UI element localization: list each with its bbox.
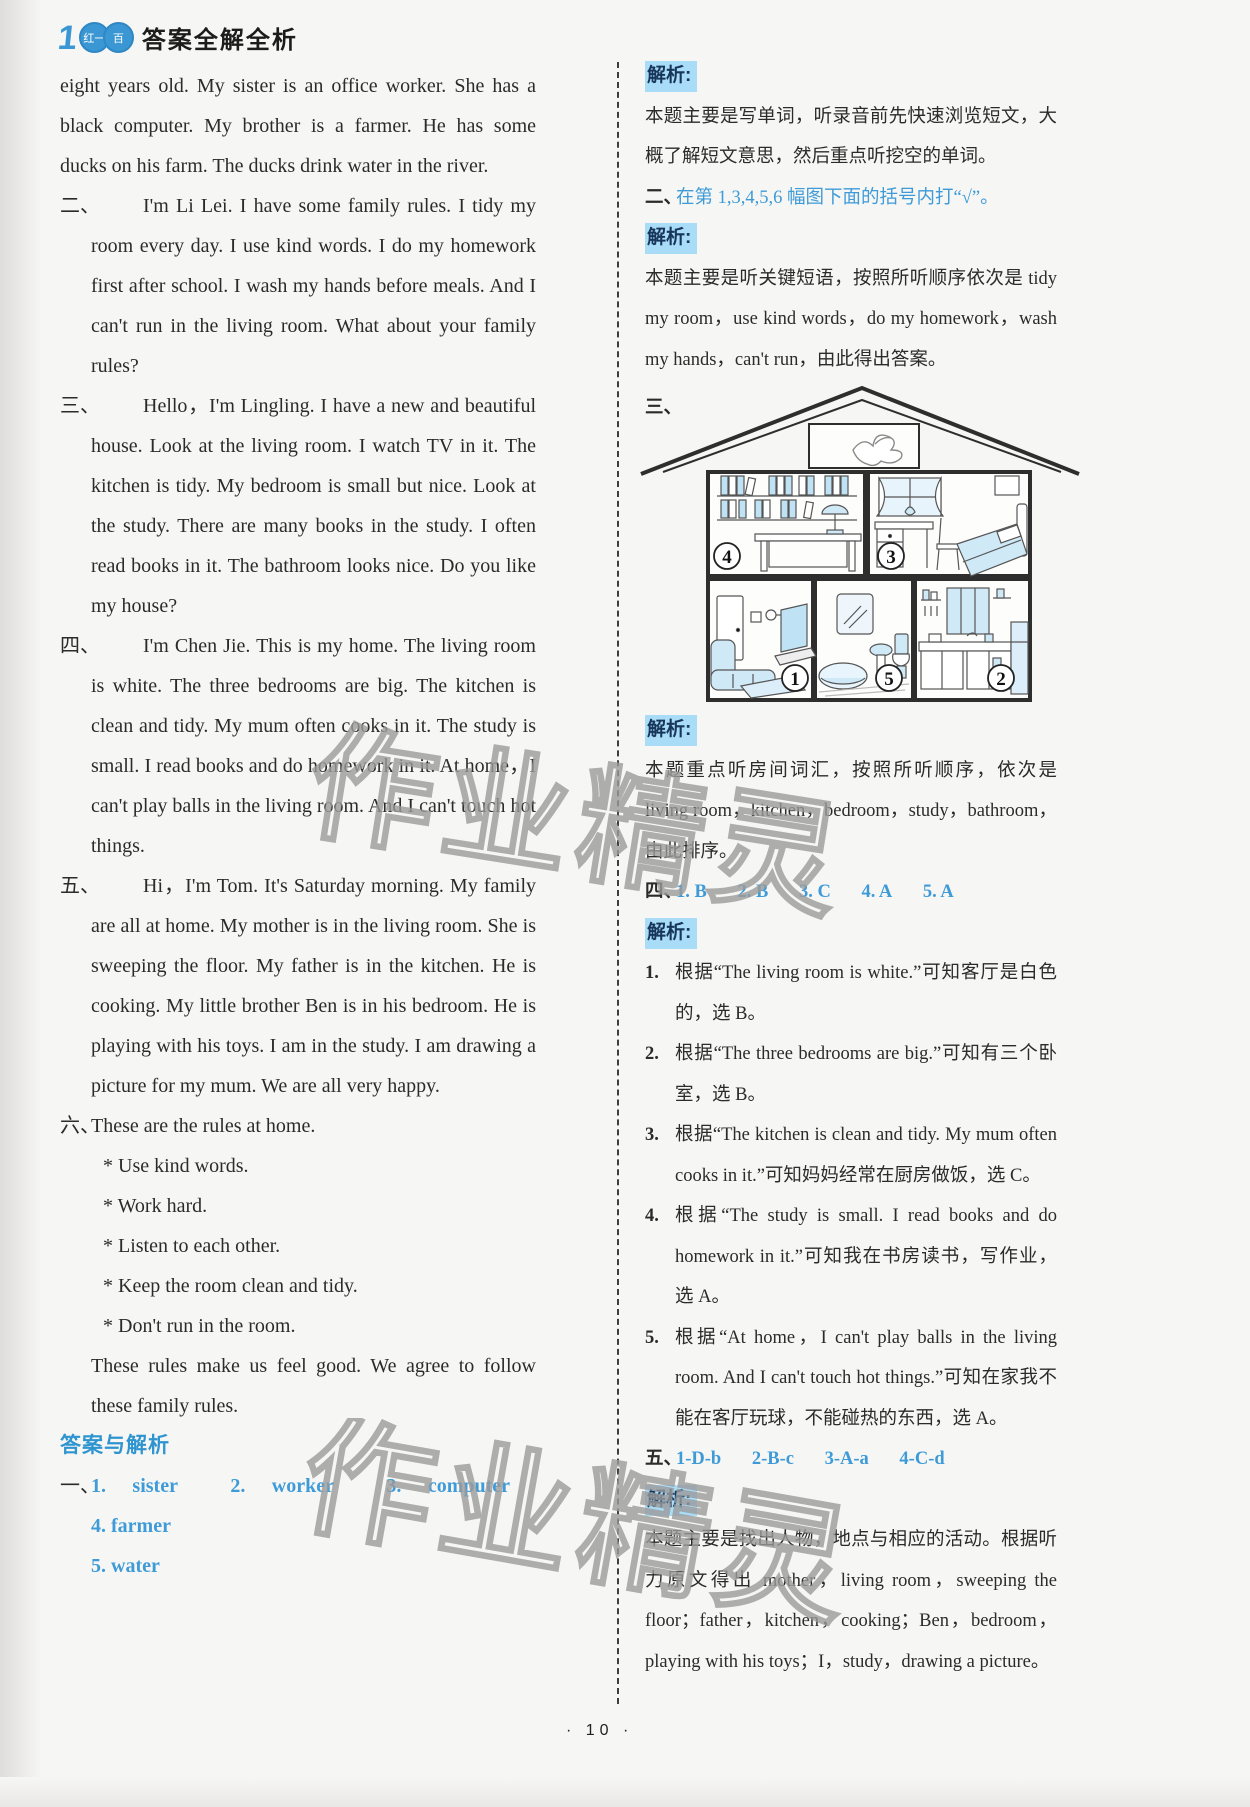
analysis-label: 解析: bbox=[645, 61, 697, 92]
section-marker: 六、 bbox=[60, 1106, 100, 1146]
rule-item: * Use kind words. bbox=[91, 1146, 536, 1186]
transcript-section-2: 二、 I'm Li Lei. I have some family rules.… bbox=[60, 186, 536, 386]
answer-row: 1. sister 2. worker 3. computer 4. farme… bbox=[91, 1466, 536, 1546]
item-number: 1. bbox=[645, 953, 659, 994]
section-marker: 三、 bbox=[60, 386, 100, 426]
section-marker: 三、 bbox=[645, 388, 682, 429]
analysis-item-1: 1. 根据“The living room is white.”可知客厅是白色的… bbox=[645, 953, 1057, 1034]
transcript-section-3: 三、 Hello，I'm Lingling. I have a new and … bbox=[60, 386, 536, 626]
answer-item: 1. sister bbox=[91, 1475, 178, 1497]
lower-room-wall-1 bbox=[811, 581, 817, 698]
rule-item: * Work hard. bbox=[91, 1186, 536, 1226]
analysis-item-4: 4. 根据“The study is small. I read books a… bbox=[645, 1196, 1057, 1318]
answer-row: 5. water bbox=[91, 1546, 536, 1586]
upper-room-wall bbox=[863, 474, 870, 574]
answer-item: 2. B bbox=[737, 882, 768, 902]
books-top-row bbox=[721, 476, 848, 496]
cup bbox=[985, 634, 993, 642]
transcript-continuation: eight years old. My sister is an office … bbox=[60, 66, 536, 186]
answer-item: 4. farmer bbox=[91, 1515, 171, 1537]
transcript-section-4: 四、 I'm Chen Jie. This is my home. The li… bbox=[60, 626, 536, 866]
house-cross-section-illustration: 4 3 1 5 2 bbox=[629, 384, 1089, 708]
floor-divider bbox=[710, 574, 1028, 581]
house-figure: 三、 bbox=[645, 384, 1057, 708]
rule-item: * Don't run in the room. bbox=[91, 1306, 536, 1346]
analysis-label: 解析: bbox=[645, 715, 697, 746]
rules-closing: These rules make us feel good. We agree … bbox=[91, 1346, 536, 1426]
desk bbox=[755, 534, 861, 571]
answer-section-1: 一、 1. sister 2. worker 3. computer 4. fa… bbox=[60, 1466, 536, 1586]
rule-item: * Listen to each other. bbox=[91, 1226, 536, 1266]
item-text: 根据“The living room is white.”可知客厅是白色的，选 … bbox=[675, 963, 1057, 1024]
page-header: 1 红一 百 答案全解全析 bbox=[58, 20, 298, 55]
mirror bbox=[837, 594, 873, 634]
room-number-bedroom: 3 bbox=[886, 547, 896, 568]
tv-screen bbox=[781, 604, 807, 652]
section-marker: 四、 bbox=[645, 872, 682, 913]
page-title: 答案全解全析 bbox=[142, 20, 298, 55]
page-edge-shading bbox=[0, 0, 42, 1807]
analysis-text-3: 本题重点听房间词汇，按照所听顺序，依次是 living room，kitchen… bbox=[645, 751, 1057, 873]
answer-item: 5. A bbox=[923, 882, 954, 902]
transcript-text: I'm Li Lei. I have some family rules. I … bbox=[91, 186, 536, 386]
item-number: 2. bbox=[645, 1034, 659, 1075]
question-instruction: 在第 1,3,4,5,6 幅图下面的括号内打“√”。 bbox=[676, 178, 1057, 219]
pot bbox=[929, 634, 941, 642]
answer-item: 5. water bbox=[91, 1555, 160, 1577]
item-number: 5. bbox=[645, 1318, 659, 1359]
window bbox=[877, 478, 943, 516]
room-number-living-room: 1 bbox=[790, 669, 800, 690]
item-text: 根据“The study is small. I read books and … bbox=[675, 1206, 1057, 1307]
answer-item: 2. worker bbox=[230, 1475, 334, 1497]
analysis-text-2: 本题主要是听关键短语，按照所听顺序依次是 tidy my room，use ki… bbox=[645, 259, 1057, 381]
analysis-text-1: 本题主要是写单词，听录音前先快速浏览短文，大概了解短文意思，然后重点听挖空的单词… bbox=[645, 97, 1057, 178]
room-number-study: 4 bbox=[722, 547, 732, 568]
transcript-text: Hi，I'm Tom. It's Saturday morning. My fa… bbox=[91, 866, 536, 1106]
analysis-text-5: 本题主要是找出人物，地点与相应的活动。根据听力原文得出 mother，livin… bbox=[645, 1520, 1057, 1682]
section-marker: 二、 bbox=[60, 186, 100, 226]
section-marker: 五、 bbox=[60, 866, 100, 906]
answer-item: 3-A-a bbox=[825, 1449, 869, 1469]
answer-section-4: 四、 1. B 2. B 3. C 4. A 5. A bbox=[645, 872, 1057, 913]
logo-digit: 1 bbox=[56, 21, 78, 55]
transcript-section-6: 六、 These are the rules at home. * Use ki… bbox=[60, 1106, 536, 1426]
item-text: 根据“The three bedrooms are big.”可知有三个卧室，选… bbox=[675, 1044, 1057, 1105]
rule-item: * Keep the room clean and tidy. bbox=[91, 1266, 536, 1306]
brand-logo-icon: 1 红一 百 bbox=[58, 21, 134, 55]
room-number-bathroom: 5 bbox=[884, 669, 894, 690]
column-divider bbox=[617, 62, 619, 1704]
right-column: 解析: 本题主要是写单词，听录音前先快速浏览短文，大概了解短文意思，然后重点听挖… bbox=[645, 56, 1057, 1682]
page-number: · 10 · bbox=[566, 1722, 633, 1740]
logo-ring-2: 百 bbox=[103, 22, 134, 53]
item-number: 4. bbox=[645, 1196, 659, 1237]
lower-room-wall-2 bbox=[911, 581, 917, 698]
left-column: eight years old. My sister is an office … bbox=[60, 66, 536, 1586]
analysis-item-2: 2. 根据“The three bedrooms are big.”可知有三个卧… bbox=[645, 1034, 1057, 1115]
answer-item: 2-B-c bbox=[752, 1449, 794, 1469]
transcript-section-5: 五、 Hi，I'm Tom. It's Saturday morning. My… bbox=[60, 866, 536, 1106]
rules-intro: These are the rules at home. bbox=[91, 1106, 536, 1146]
item-text: 根据“The kitchen is clean and tidy. My mum… bbox=[675, 1125, 1057, 1186]
section-marker: 二、 bbox=[645, 178, 682, 219]
transcript-text: Hello，I'm Lingling. I have a new and bea… bbox=[91, 386, 536, 626]
analysis-label: 解析: bbox=[645, 918, 697, 949]
room-number-kitchen: 2 bbox=[996, 669, 1006, 690]
answer-item: 3. computer bbox=[386, 1475, 510, 1497]
answer-section-5: 五、 1-D-b 2-B-c 3-A-a 4-C-d bbox=[645, 1439, 1057, 1480]
section-marker: 一、 bbox=[60, 1466, 100, 1506]
section-marker: 四、 bbox=[60, 626, 100, 666]
section-marker: 五、 bbox=[645, 1439, 682, 1480]
analysis-label: 解析: bbox=[645, 223, 697, 254]
answer-item: 1-D-b bbox=[676, 1449, 721, 1469]
analysis-item-3: 3. 根据“The kitchen is clean and tidy. My … bbox=[645, 1115, 1057, 1196]
wall-picture bbox=[995, 476, 1019, 495]
page-bottom-shading bbox=[0, 1777, 1250, 1807]
light-switch bbox=[751, 612, 761, 622]
transcript-text: I'm Chen Jie. This is my home. The livin… bbox=[91, 626, 536, 866]
item-number: 3. bbox=[645, 1115, 659, 1156]
answer-item: 4-C-d bbox=[899, 1449, 944, 1469]
answers-heading: 答案与解析 bbox=[60, 1426, 536, 1466]
answer-item: 3. C bbox=[799, 882, 831, 902]
bathtub bbox=[819, 663, 867, 689]
item-text: 根据“At home，I can't play balls in the liv… bbox=[675, 1328, 1057, 1429]
question-section-2: 二、 在第 1,3,4,5,6 幅图下面的括号内打“√”。 bbox=[645, 178, 1057, 219]
answer-item: 4. A bbox=[861, 882, 892, 902]
analysis-item-5: 5. 根据“At home，I can't play balls in the … bbox=[645, 1318, 1057, 1440]
analysis-label: 解析: bbox=[645, 1485, 697, 1516]
window bbox=[947, 588, 989, 634]
